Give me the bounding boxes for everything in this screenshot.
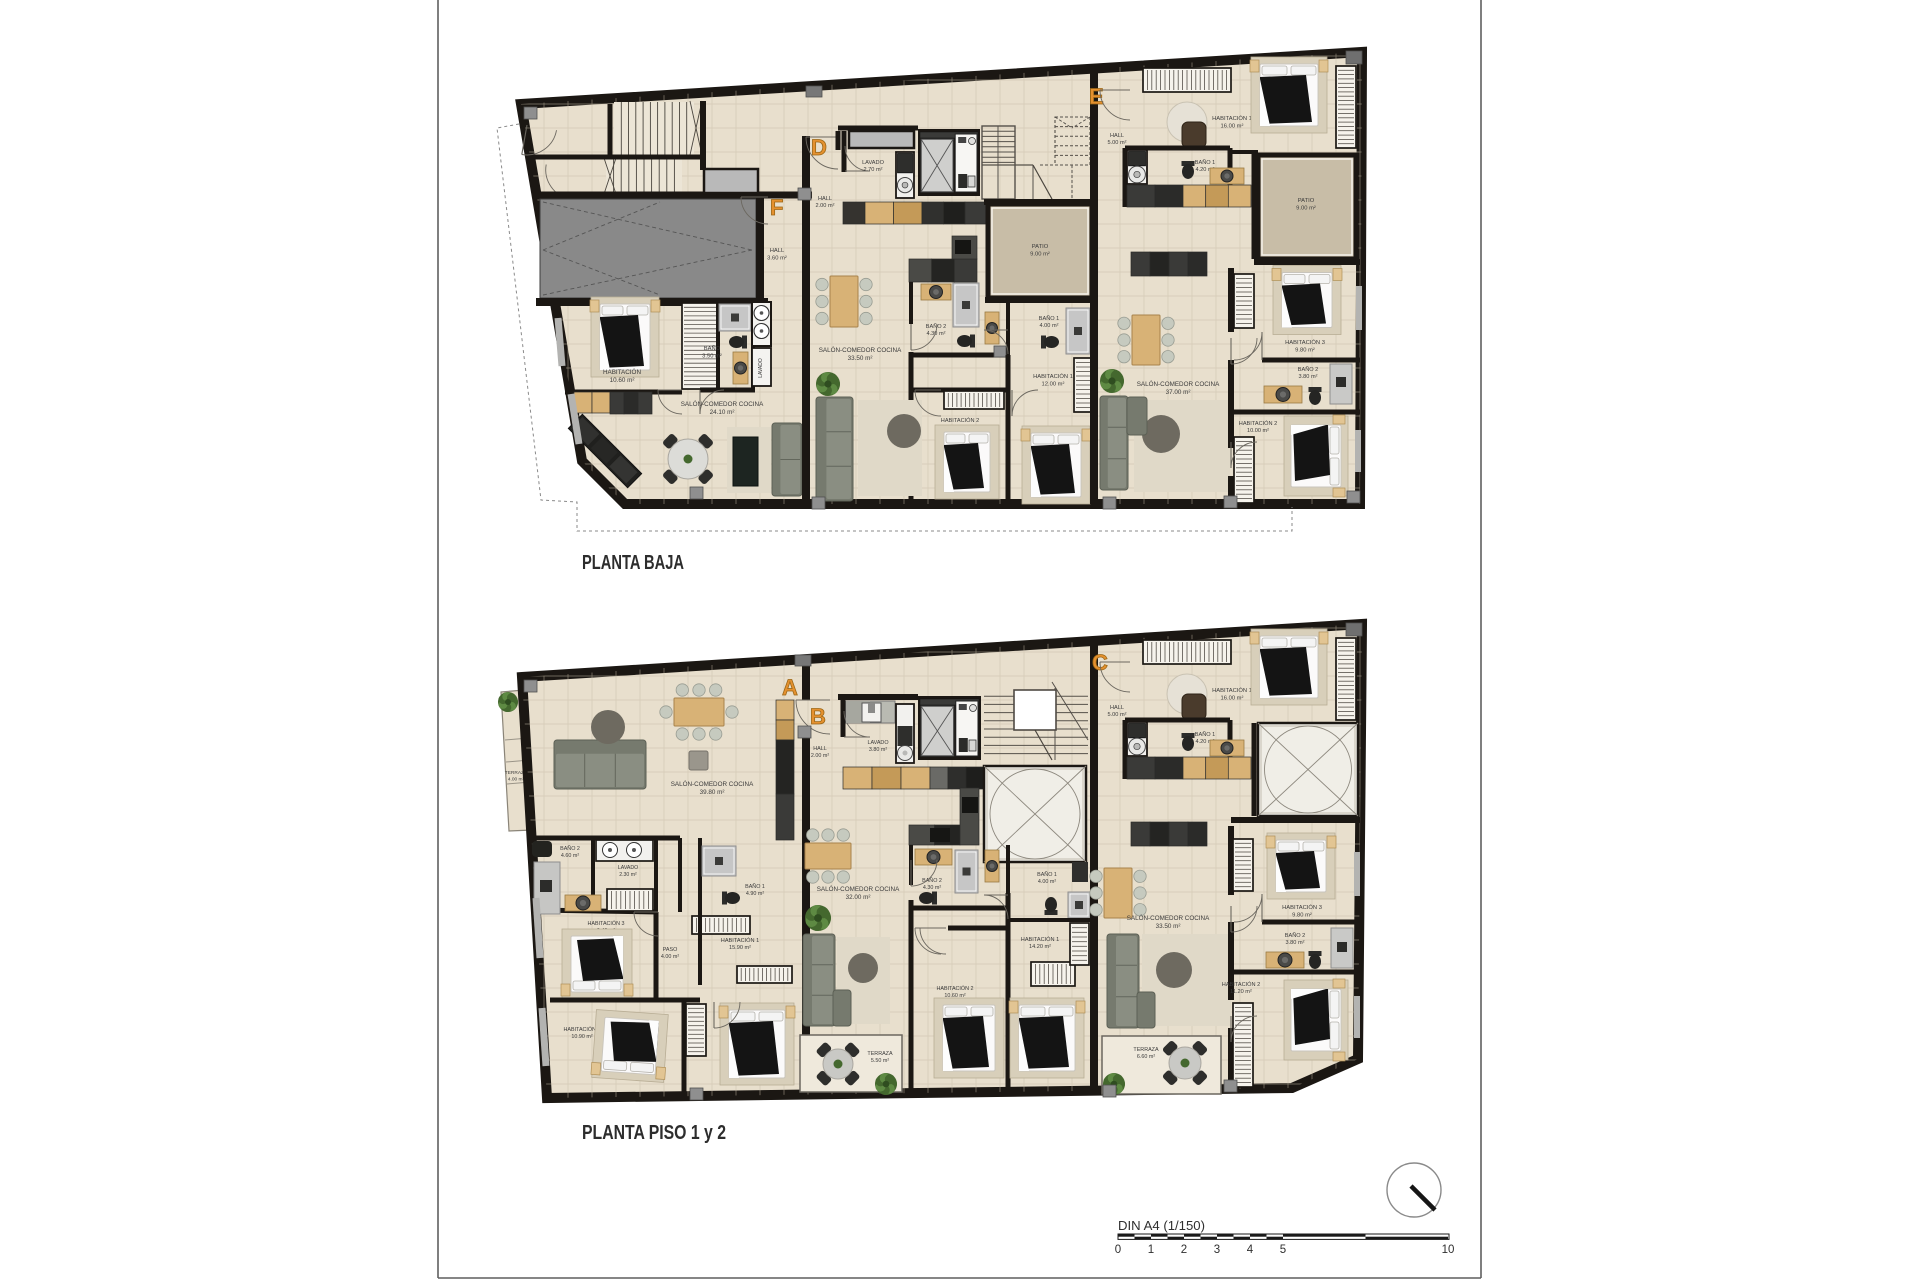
svg-text:HABITACIÓN: HABITACIÓN <box>603 367 641 376</box>
svg-text:33.50 m²: 33.50 m² <box>1156 923 1181 930</box>
svg-text:BAÑO 2: BAÑO 2 <box>922 877 942 884</box>
svg-text:BAÑO: BAÑO <box>704 345 721 352</box>
svg-text:3.80 m²: 3.80 m² <box>869 747 887 753</box>
svg-text:1: 1 <box>1148 1244 1154 1256</box>
svg-text:LAVADO: LAVADO <box>758 358 764 378</box>
svg-text:PLANTA BAJA: PLANTA BAJA <box>582 552 684 574</box>
svg-text:HABITACIÓN 1: HABITACIÓN 1 <box>721 937 759 944</box>
svg-text:10.00 m²: 10.00 m² <box>1247 428 1269 434</box>
svg-text:9.80 m²: 9.80 m² <box>1292 912 1312 918</box>
svg-text:4: 4 <box>1247 1244 1254 1256</box>
svg-text:BAÑO 1: BAÑO 1 <box>1195 731 1216 738</box>
svg-text:0: 0 <box>1115 1244 1121 1256</box>
svg-text:4.00 m²: 4.00 m² <box>1040 323 1059 329</box>
svg-text:3.60 m²: 3.60 m² <box>767 255 787 261</box>
svg-text:SALÓN-COMEDOR COCINA: SALÓN-COMEDOR COCINA <box>817 884 900 893</box>
svg-text:HALL: HALL <box>770 248 785 254</box>
svg-text:BAÑO 1: BAÑO 1 <box>1037 871 1057 878</box>
svg-text:DIN A4 (1/150): DIN A4 (1/150) <box>1118 1219 1205 1233</box>
svg-text:32.00 m²: 32.00 m² <box>846 894 871 901</box>
svg-text:HABITACIÓN 2: HABITACIÓN 2 <box>936 985 973 992</box>
svg-text:3.50 m²: 3.50 m² <box>702 353 722 359</box>
svg-text:4.90 m²: 4.90 m² <box>746 891 764 897</box>
svg-text:HABITACIÓN 2: HABITACIÓN 2 <box>1239 420 1277 427</box>
svg-text:BAÑO 2: BAÑO 2 <box>560 845 580 852</box>
svg-text:16.00 m²: 16.00 m² <box>1221 695 1244 701</box>
svg-text:PATIO: PATIO <box>1298 198 1315 204</box>
svg-text:6.60 m²: 6.60 m² <box>1137 1054 1155 1060</box>
svg-text:PATIO: PATIO <box>1032 244 1049 250</box>
svg-text:14.20 m²: 14.20 m² <box>1029 944 1051 950</box>
svg-text:9.00 m²: 9.00 m² <box>1296 205 1316 211</box>
svg-text:HABITACIÓN 3: HABITACIÓN 3 <box>1282 904 1322 911</box>
svg-text:4.00 m²: 4.00 m² <box>508 776 525 782</box>
svg-text:5: 5 <box>1280 1244 1286 1256</box>
svg-text:37.00 m²: 37.00 m² <box>1166 389 1191 396</box>
svg-text:LAVADO: LAVADO <box>618 865 638 871</box>
svg-text:HALL: HALL <box>813 746 827 752</box>
svg-text:HABITACIÓN 2: HABITACIÓN 2 <box>1222 981 1260 988</box>
svg-text:4.00 m²: 4.00 m² <box>661 954 679 960</box>
svg-text:SALÓN-COMEDOR COCINA: SALÓN-COMEDOR COCINA <box>1127 913 1210 922</box>
svg-text:BAÑO 2: BAÑO 2 <box>926 323 947 330</box>
svg-text:10.90 m²: 10.90 m² <box>571 1034 592 1040</box>
svg-text:4.60 m²: 4.60 m² <box>561 853 579 859</box>
svg-text:TERRAZA: TERRAZA <box>867 1051 893 1057</box>
svg-text:PASO: PASO <box>663 947 678 953</box>
svg-text:BAÑO 1: BAÑO 1 <box>1195 159 1216 166</box>
svg-text:HABITACIÓN 1: HABITACIÓN 1 <box>1212 687 1252 694</box>
svg-text:A: A <box>782 675 798 700</box>
svg-text:HABITACIÓN 1: HABITACIÓN 1 <box>1033 373 1073 380</box>
svg-text:E: E <box>1089 84 1104 109</box>
svg-text:D: D <box>811 135 827 160</box>
svg-text:10.60 m²: 10.60 m² <box>610 377 635 384</box>
svg-text:SALÓN-COMEDOR COCINA: SALÓN-COMEDOR COCINA <box>671 779 754 788</box>
svg-text:B: B <box>810 704 826 729</box>
svg-text:TERRAZA: TERRAZA <box>1133 1047 1159 1053</box>
svg-text:SALÓN-COMEDOR COCINA: SALÓN-COMEDOR COCINA <box>681 399 764 408</box>
svg-text:BAÑO 2: BAÑO 2 <box>1285 932 1306 939</box>
svg-text:5.50 m²: 5.50 m² <box>871 1058 889 1064</box>
svg-text:2.00 m²: 2.00 m² <box>816 203 835 209</box>
svg-text:SALÓN-COMEDOR COCINA: SALÓN-COMEDOR COCINA <box>1137 379 1220 388</box>
svg-text:24.10 m²: 24.10 m² <box>710 409 735 416</box>
svg-text:3: 3 <box>1214 1244 1220 1256</box>
svg-text:HABITACIÓN 1: HABITACIÓN 1 <box>1212 115 1252 122</box>
svg-text:33.50 m²: 33.50 m² <box>848 355 873 362</box>
svg-text:11.20 m²: 11.20 m² <box>1230 989 1252 995</box>
svg-text:PLANTA PISO 1 y 2: PLANTA PISO 1 y 2 <box>582 1122 726 1144</box>
svg-text:BAÑO 1: BAÑO 1 <box>1039 315 1060 322</box>
svg-text:HALL: HALL <box>818 196 832 202</box>
svg-text:9.80 m²: 9.80 m² <box>1295 347 1315 353</box>
svg-text:HABITACIÓN 2: HABITACIÓN 2 <box>941 417 979 424</box>
svg-text:F: F <box>770 195 783 220</box>
svg-text:HABITACIÓN 3: HABITACIÓN 3 <box>1285 339 1325 346</box>
svg-text:3.80 m²: 3.80 m² <box>1286 940 1305 946</box>
svg-text:4.30 m²: 4.30 m² <box>923 885 941 891</box>
svg-text:12.00 m²: 12.00 m² <box>1042 381 1065 387</box>
svg-text:SALÓN-COMEDOR COCINA: SALÓN-COMEDOR COCINA <box>819 345 902 354</box>
svg-text:BAÑO 1: BAÑO 1 <box>745 883 765 890</box>
svg-text:HALL: HALL <box>1110 133 1124 139</box>
svg-text:39.80 m²: 39.80 m² <box>700 789 725 796</box>
svg-text:5.00 m²: 5.00 m² <box>1108 140 1127 146</box>
svg-text:LAVADO: LAVADO <box>862 160 885 166</box>
svg-text:16.00 m²: 16.00 m² <box>1221 123 1244 129</box>
svg-text:5.00 m²: 5.00 m² <box>1108 712 1127 718</box>
svg-text:9.00 m²: 9.00 m² <box>1030 251 1050 257</box>
svg-text:2: 2 <box>1181 1244 1187 1256</box>
svg-text:LAVADO: LAVADO <box>867 740 888 746</box>
svg-text:HABITACIÓN 1: HABITACIÓN 1 <box>1021 936 1059 943</box>
svg-text:2.00 m²: 2.00 m² <box>811 753 829 759</box>
svg-text:HALL: HALL <box>1110 705 1124 711</box>
svg-text:3.80 m²: 3.80 m² <box>1299 374 1318 380</box>
svg-text:2.30 m²: 2.30 m² <box>619 872 637 878</box>
svg-text:10: 10 <box>1442 1244 1455 1256</box>
svg-text:4.00 m²: 4.00 m² <box>1038 879 1056 885</box>
svg-text:HABITACIÓN 3: HABITACIÓN 3 <box>587 920 624 927</box>
svg-text:15.90 m²: 15.90 m² <box>729 945 751 951</box>
svg-text:BAÑO 2: BAÑO 2 <box>1298 366 1319 373</box>
svg-text:2.70 m²: 2.70 m² <box>864 167 883 173</box>
